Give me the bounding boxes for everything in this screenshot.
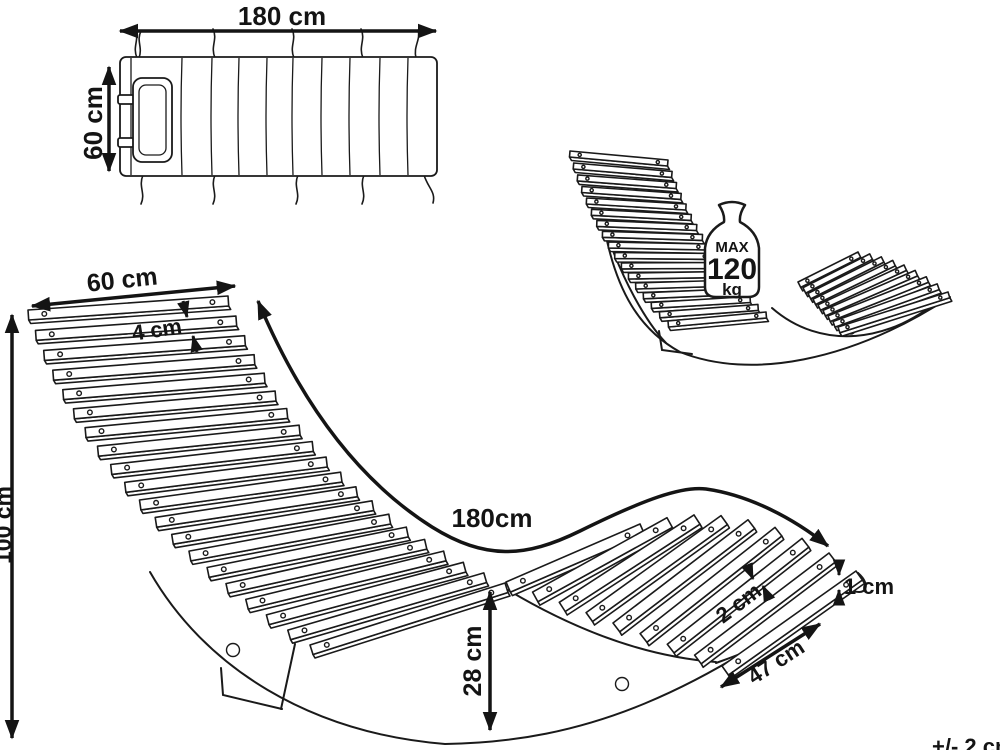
screw-hole [674,205,677,208]
screw-hole [50,332,55,337]
screw-hole [170,518,175,523]
screw-hole [884,266,887,269]
screw-hole [644,284,647,287]
screw-hole [764,539,769,544]
diagram-svg: 180 cm 60 cm MAX 120 kg [0,0,1000,750]
cushion-length-label: 180 cm [238,1,326,31]
screw-hole [257,395,262,400]
slat-thickness-label: 1 cm [844,574,894,599]
mid-height-label: 28 cm [459,626,487,697]
screw-hole [652,294,655,297]
screw-hole [521,578,526,583]
screw-hole [186,534,191,539]
screw-hole [896,270,899,273]
frame-hole [616,678,629,691]
screw-hole [907,275,910,278]
screw-hole [611,233,614,236]
screw-hole [323,477,328,482]
back-width-label: 60 cm [85,262,158,297]
screw-hole [811,285,814,288]
screw-hole [660,303,663,306]
screw-hole [816,291,819,294]
screw-hole [826,302,829,305]
screw-hole [708,648,713,653]
screw-hole [236,359,241,364]
pillow-strap [118,95,134,104]
screw-hole [623,254,626,257]
screw-hole [677,322,680,325]
screw-hole [88,410,93,415]
overall-height-label: 100 cm [0,486,16,564]
screw-hole [309,462,314,467]
screw-hole [841,320,844,323]
screw-hole [656,161,659,164]
screw-hole [154,501,159,506]
cushion-width-label: 60 cm [78,86,108,160]
screw-hole [939,296,942,299]
screw-hole [269,413,274,418]
screw-hole [637,274,640,277]
screw-hole [791,550,796,555]
screw-hole [665,183,668,186]
screw-hole [372,520,377,525]
screw-hole [468,580,473,585]
screw-hole [590,189,593,192]
screw-hole [325,643,330,648]
screw-hole [747,307,750,310]
screw-hole [573,596,578,601]
screw-hole [605,222,608,225]
lounger-perspective-view: MAX 120 kg [570,151,952,365]
screw-hole [625,533,630,538]
screw-hole [547,587,552,592]
screw-hole [281,430,286,435]
screw-hole [691,236,694,239]
screw-hole [736,659,741,664]
screw-hole [595,200,598,203]
screw-hole [427,558,432,563]
screw-hole [846,326,849,329]
screw-hole [203,551,208,556]
screw-hole [582,165,585,168]
perspective-seat-slats [798,252,952,336]
screw-hole [240,583,245,588]
screw-hole [139,483,144,488]
screw-hole [99,429,104,434]
screw-hole [617,244,620,247]
slat [615,253,715,260]
product-dimension-diagram: 180 cm 60 cm MAX 120 kg [0,0,1000,750]
screw-hole [654,626,659,631]
screw-hole [680,215,683,218]
slat [608,242,708,250]
screw-hole [755,314,758,317]
screw-hole [600,605,605,610]
screw-hole [660,172,663,175]
screw-hole [806,279,809,282]
screw-hole [260,598,265,603]
screw-hole [669,194,672,197]
screw-hole [917,281,920,284]
screw-hole [302,628,307,633]
screw-hole [125,465,130,470]
screw-hole [281,613,286,618]
screw-hole [218,320,223,325]
max-load-unit: kg [722,280,742,299]
lounger-side-view: 60 cm 4 cm 100 cm 180cm 28 cm 1 cm 2 cm … [0,262,894,744]
screw-hole [627,615,632,620]
screw-hole [355,506,360,511]
frame-hole [227,644,240,657]
screw-hole [850,257,853,260]
screw-hole [685,226,688,229]
screw-hole [600,211,603,214]
screw-hole [736,532,741,537]
pillow-strap [118,138,134,147]
screw-hole [222,567,227,572]
screw-hole [77,391,82,396]
screw-hole [339,492,344,497]
screw-hole [447,569,452,574]
screw-hole [861,259,864,262]
screw-hole [836,314,839,317]
surface-length-label: 180cm [452,503,533,533]
side-view-back-slats [28,296,510,658]
screw-hole [681,636,686,641]
screw-hole [873,262,876,265]
screw-hole [389,533,394,538]
screw-hole [42,312,47,317]
screw-hole [821,296,824,299]
screw-hole [210,300,215,305]
cushion-top-view: 180 cm 60 cm [78,1,437,204]
screw-hole [817,565,822,570]
screw-hole [586,177,589,180]
screw-hole [697,245,700,248]
screw-hole [653,528,658,533]
screw-hole [246,377,251,382]
screw-hole [295,446,300,451]
screw-hole [227,340,232,345]
tolerance-label: +/- 2 cm [932,734,1000,750]
screw-hole [831,308,834,311]
screw-hole [928,288,931,291]
screw-hole [58,352,63,357]
screw-hole [578,153,581,156]
screw-hole [67,372,72,377]
screw-hole [681,526,686,531]
screw-hole [630,264,633,267]
screw-hole [668,312,671,315]
screw-hole [408,545,413,550]
screw-hole [112,447,117,452]
screw-hole [709,527,714,532]
